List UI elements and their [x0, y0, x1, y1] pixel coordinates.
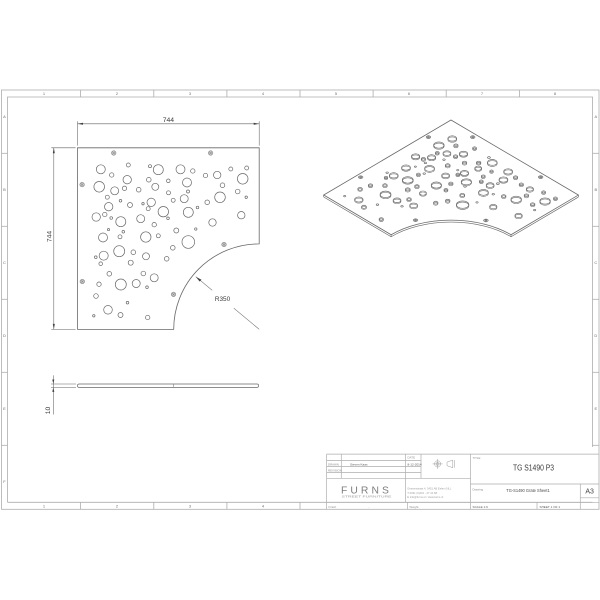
svg-text:8-12-2014: 8-12-2014 [408, 462, 422, 466]
svg-text:A3: A3 [585, 489, 594, 496]
svg-text:D: D [594, 333, 597, 338]
svg-text:STREET FURNITURE: STREET FURNITURE [342, 495, 392, 499]
svg-text:E: E [3, 406, 6, 411]
svg-text:744: 744 [163, 117, 175, 124]
svg-text:10: 10 [45, 407, 52, 415]
svg-text:DRAWN: DRAWN [328, 462, 339, 466]
svg-text:REVISION: REVISION [328, 468, 342, 472]
svg-text:SCALE 1:6: SCALE 1:6 [473, 505, 489, 509]
svg-text:DATE: DATE [408, 456, 416, 460]
svg-text:SHEET 1 OF 1: SHEET 1 OF 1 [540, 505, 561, 509]
svg-text:TG S1490 P3: TG S1490 P3 [513, 462, 554, 472]
svg-text:T 0031 (0)410 - 27 41 68.: T 0031 (0)410 - 27 41 68. [407, 491, 438, 495]
svg-text:Drawing: Drawing [473, 488, 484, 492]
svg-text:Finish: Finish [329, 505, 337, 509]
svg-text:TITLE: TITLE [473, 456, 481, 460]
svg-text:Steven Kaas: Steven Kaas [350, 462, 368, 466]
svg-text:A: A [594, 114, 597, 119]
svg-text:A: A [3, 114, 6, 119]
svg-text:E info@furns.nl / www.furns.nl: E info@furns.nl / www.furns.nl [407, 495, 443, 499]
svg-text:D: D [3, 333, 6, 338]
svg-text:B: B [594, 187, 597, 192]
svg-text:C: C [3, 260, 6, 265]
svg-text:TG-S1490 Grate Sheet1: TG-S1490 Grate Sheet1 [506, 488, 550, 493]
svg-text:B: B [3, 187, 6, 192]
svg-text:Weight:: Weight: [409, 505, 419, 509]
svg-text:Gessenstraat 4, 3451 AB Eelen: Gessenstraat 4, 3451 AB Eelen (NL). [407, 486, 451, 490]
svg-text:-: - [369, 505, 370, 509]
svg-text:C: C [594, 260, 597, 265]
svg-text:E: E [594, 406, 597, 411]
svg-text:744: 744 [47, 231, 54, 243]
svg-text:R350: R350 [215, 296, 231, 303]
